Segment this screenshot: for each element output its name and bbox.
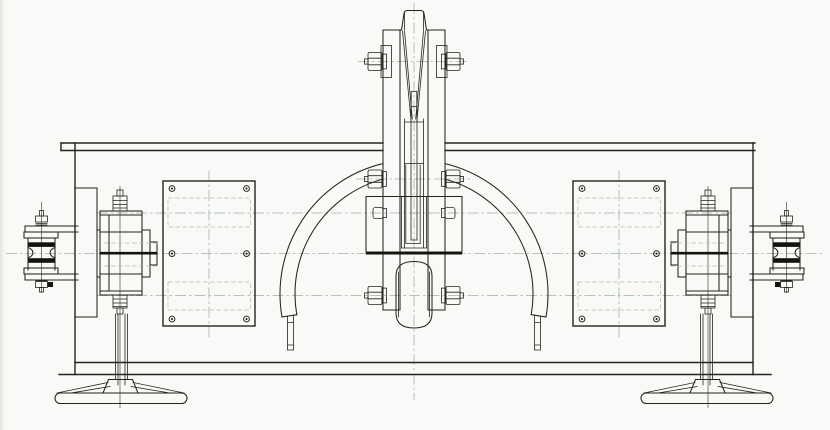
cover-plate-left — [163, 171, 255, 339]
main-beam — [59, 143, 771, 375]
technical-drawing-page — [0, 0, 830, 430]
assembly-front-elevation — [0, 0, 830, 430]
centerlines — [6, 3, 822, 400]
cover-plate-right — [573, 171, 665, 339]
guard-tail-left — [288, 315, 294, 350]
guard-tail-right — [535, 315, 541, 350]
